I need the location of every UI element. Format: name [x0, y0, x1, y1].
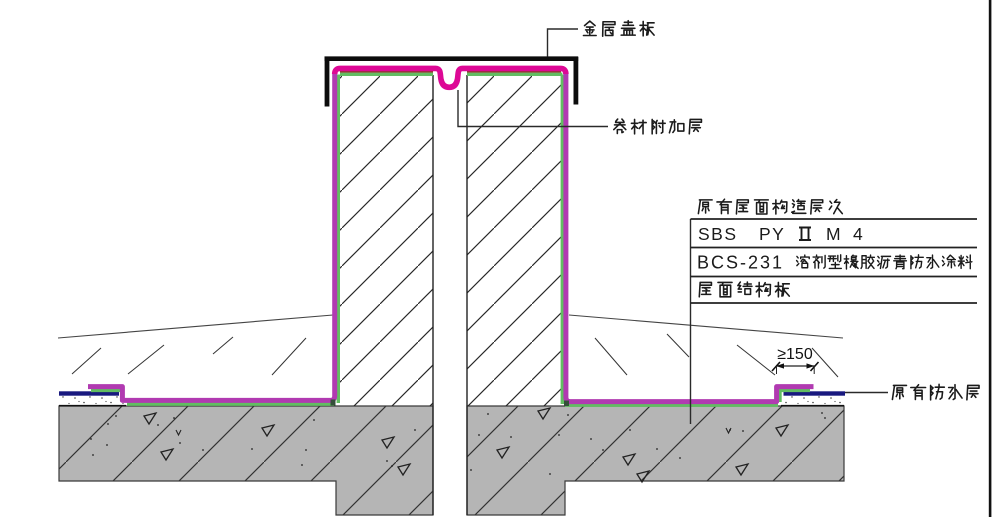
svg-text:≥150: ≥150 [777, 346, 813, 363]
svg-text:BCS-231: BCS-231 [697, 253, 784, 273]
svg-text:SBS: SBS [698, 224, 738, 244]
svg-text:PY: PY [759, 224, 785, 244]
svg-text:M: M [826, 224, 841, 244]
svg-text:4: 4 [853, 224, 863, 244]
